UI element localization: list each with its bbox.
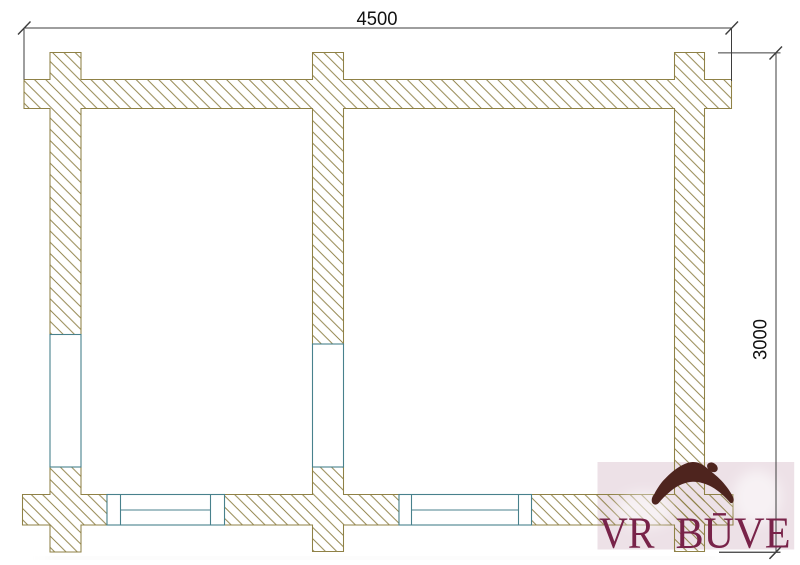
svg-text:3000: 3000 [751,319,772,360]
svg-text:BŪVE: BŪVE [676,509,791,558]
svg-text:VR: VR [599,509,655,558]
svg-text:4500: 4500 [357,9,398,30]
